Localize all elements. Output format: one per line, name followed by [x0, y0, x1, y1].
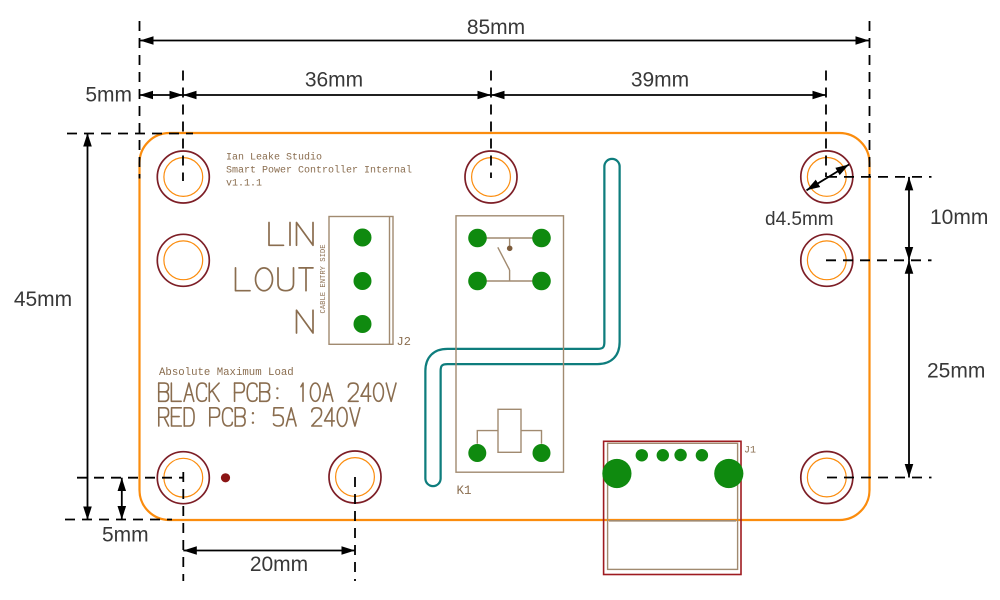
svg-text:K1: K1 [457, 484, 472, 498]
svg-text:d4.5mm: d4.5mm [765, 209, 834, 230]
svg-text:85mm: 85mm [467, 16, 525, 39]
svg-text:5mm: 5mm [85, 84, 132, 107]
svg-text:CABLE ENTRY SIDE: CABLE ENTRY SIDE [320, 244, 328, 313]
svg-text:5mm: 5mm [102, 524, 149, 547]
svg-text:J2: J2 [397, 335, 411, 349]
svg-text:45mm: 45mm [14, 288, 72, 311]
svg-text:Smart Power Controller Interna: Smart Power Controller Internal [226, 165, 412, 177]
svg-text:20mm: 20mm [250, 553, 308, 576]
svg-text:Absolute Maximum Load: Absolute Maximum Load [159, 367, 294, 379]
svg-text:39mm: 39mm [631, 69, 689, 92]
svg-text:Ian Leake Studio: Ian Leake Studio [226, 152, 322, 164]
svg-text:J1: J1 [744, 446, 756, 457]
svg-text:v1.1.1: v1.1.1 [226, 179, 262, 190]
svg-text:10mm: 10mm [930, 206, 988, 229]
svg-text:25mm: 25mm [927, 360, 985, 383]
svg-text:36mm: 36mm [305, 69, 363, 92]
